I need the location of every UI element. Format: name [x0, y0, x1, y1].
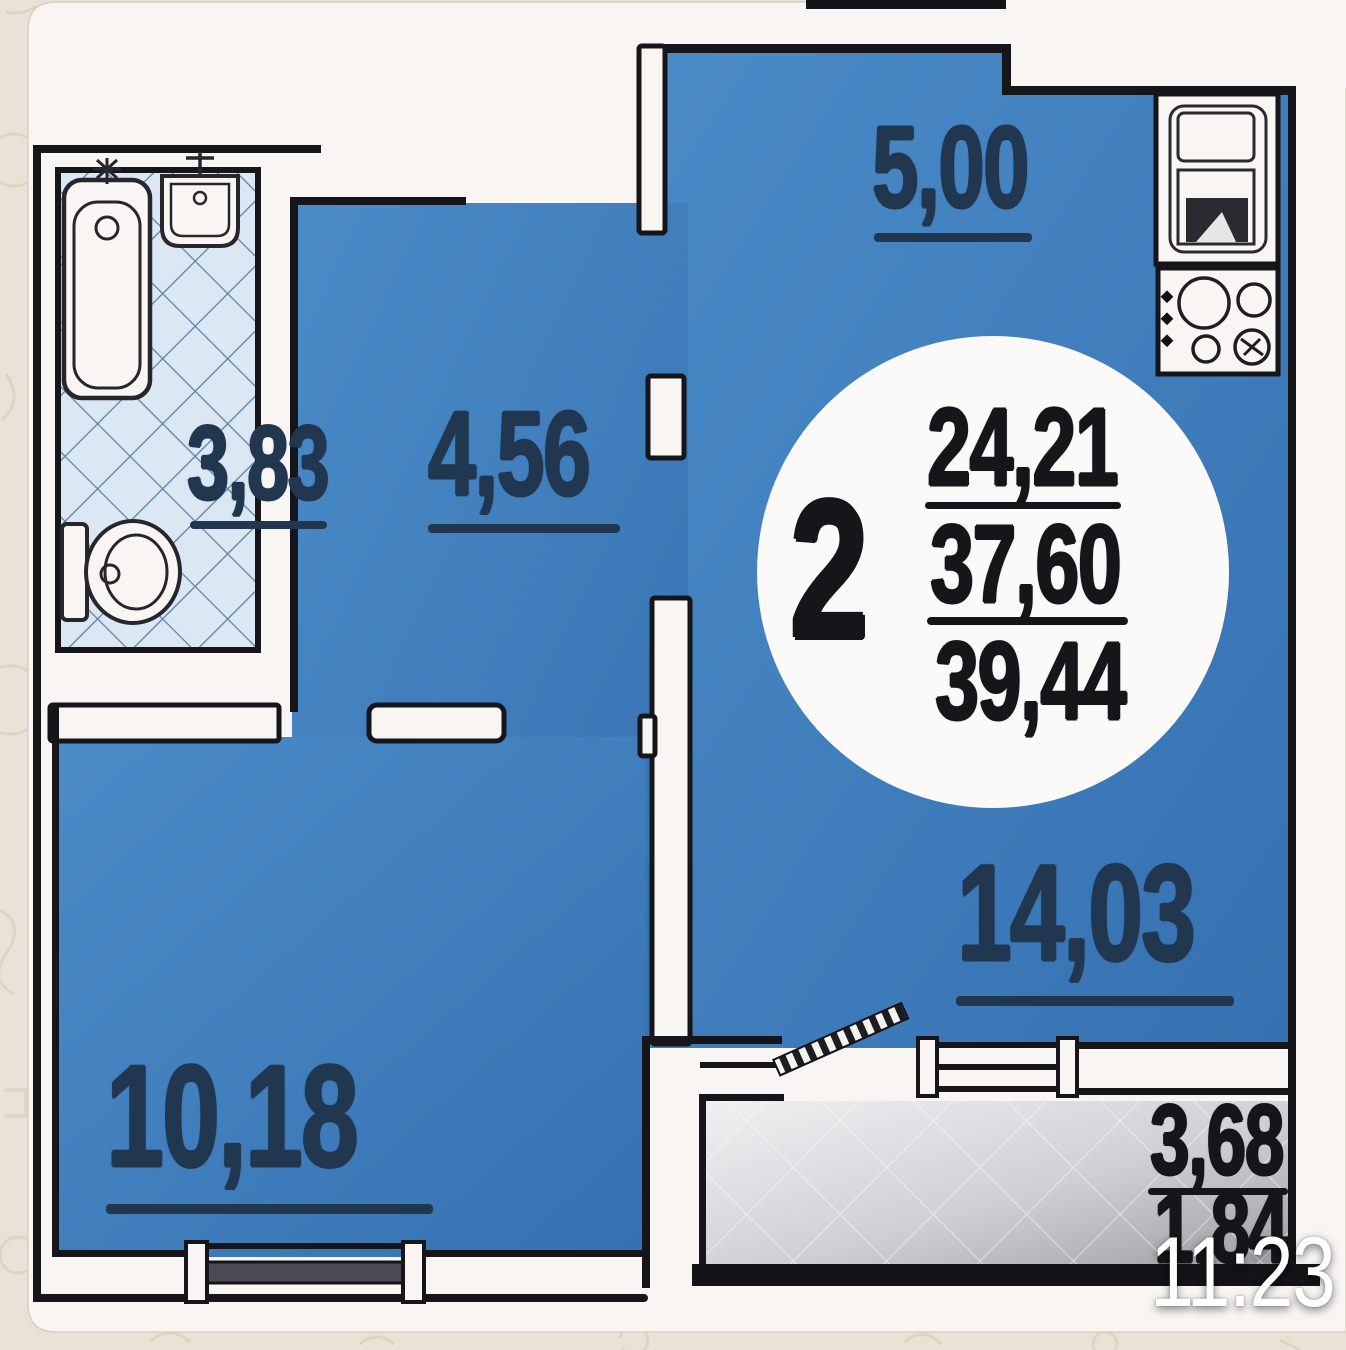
toilet-icon [62, 521, 180, 623]
kitchen-area-underline [874, 233, 1032, 242]
bathroom-area-underline [190, 521, 327, 529]
hallway-area-label: 4,56 [428, 394, 652, 514]
kitchen-area-label: 5,00 [872, 109, 1089, 225]
screenshot-stage: 3,83 4,56 5,00 14,03 10,18 3,68 1,84 2 2… [0, 0, 1346, 1350]
bedroom-area-underline [106, 1204, 433, 1214]
kitchen-sink-unit-icon [1156, 94, 1278, 264]
living-room-door-stub [640, 716, 655, 756]
balcony-window [918, 1038, 1077, 1096]
living-room-area-label: 14,03 [957, 845, 1286, 982]
living-room-area-underline [956, 996, 1234, 1006]
kitchen-left-wall [639, 46, 665, 233]
stove-icon [1158, 268, 1278, 374]
bathtub-icon [64, 158, 150, 398]
apartment-area-label: 37,60 [930, 510, 1194, 620]
bathroom-area-label: 3,83 [187, 411, 383, 516]
bedroom-area-label: 10,18 [106, 1044, 454, 1189]
rooms-count-label: 2 [790, 472, 895, 668]
video-timestamp: 11:23 [1150, 1222, 1346, 1321]
bathroom-box [58, 152, 258, 650]
bedroom-top-wall-right [369, 705, 504, 741]
hallway-area-underline [428, 524, 620, 533]
living-room-left-wall-lower [652, 598, 690, 1044]
bedroom-top-wall-left [50, 705, 279, 741]
living-room-left-wall-upper [648, 376, 684, 458]
living-area-label: 24,21 [927, 393, 1191, 503]
total-area-label: 39,44 [935, 627, 1199, 737]
